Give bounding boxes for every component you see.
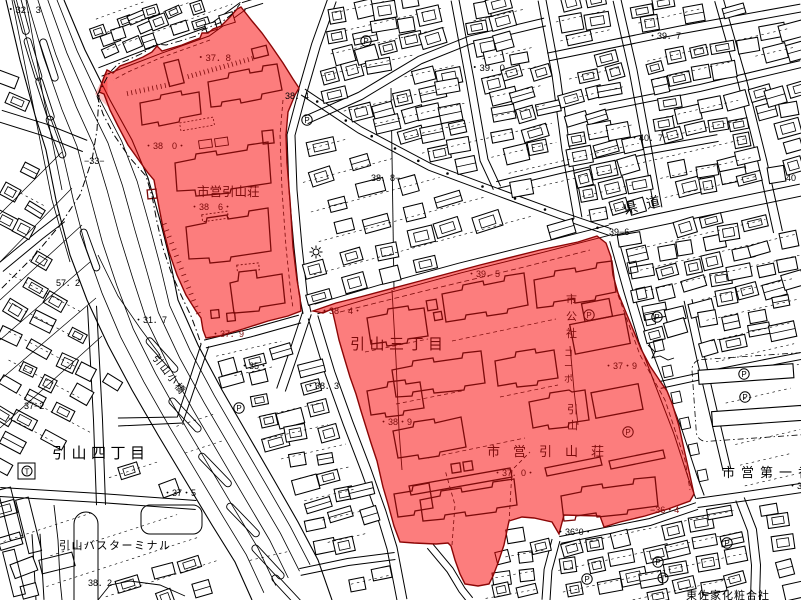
svg-text:・38 6・: ・38 6・ [190,202,232,212]
svg-text:公: 公 [566,311,577,323]
svg-text:38．8−: 38．8− [371,173,400,183]
svg-text:引山三丁目: 引山三丁目 [350,336,448,353]
svg-text:山: 山 [567,419,578,432]
svg-text:・37．8: ・37．8 [196,53,231,64]
svg-text:市営引山荘: 市営引山荘 [197,184,260,199]
svg-text:・37．9: ・37．9 [211,329,244,339]
svg-text:P: P [304,116,309,125]
svg-text:・35・: ・35・ [240,361,268,371]
svg-text:市: 市 [566,292,577,306]
svg-text:コ: コ [564,348,573,358]
svg-text:38．4: 38．4 [285,91,309,101]
svg-text:引: 引 [567,402,578,416]
svg-text:引山四丁目: 引山四丁目 [52,445,150,462]
svg-text:P: P [363,37,368,46]
svg-text:T: T [661,575,666,584]
svg-text:・38 0・: ・38 0・ [144,141,186,151]
svg-text:市営第一香流荘: 市営第一香流荘 [722,465,801,480]
svg-text:P: P [584,575,589,584]
svg-text:ー: ー [564,361,573,371]
svg-text:57．2: 57．2 [56,278,80,288]
svg-text:東佐家化粧合社: 東佐家化粧合社 [686,588,770,600]
svg-text:・39．0: ・39．0 [470,63,505,74]
svg-text:社: 社 [566,326,577,340]
svg-text:P: P [586,311,591,320]
svg-text:・38 4・: ・38 4・ [320,306,362,316]
svg-text:・37・5: ・37・5 [163,488,196,498]
svg-text:市 営 引 山 荘: 市 営 引 山 荘 [487,444,604,459]
svg-text:P: P [655,558,660,567]
svg-text:・36°0・: ・36°0・ [556,527,593,537]
svg-text:37−2: 37−2 [24,401,44,411]
svg-text:・40．7: ・40．7 [630,133,663,143]
svg-text:ポ: ポ [564,374,573,384]
svg-text:−36・4: −36・4 [650,505,679,515]
svg-text:・3: ・3 [788,481,801,491]
svg-text:T: T [25,468,30,477]
svg-text:P: P [741,370,746,379]
svg-text:39−6: 39−6 [609,227,629,237]
svg-text:−33−: −33− [84,156,105,166]
svg-text:P: P [742,393,747,402]
svg-text:・39．7: ・39．7 [648,31,681,41]
svg-text:・37．0・: ・37．0・ [493,468,535,478]
svg-text:・31．7: ・31．7 [134,315,167,325]
svg-text:P: P [625,428,630,437]
svg-text:・38．3: ・38．3 [306,381,339,391]
svg-text:P: P [654,313,659,322]
svg-text:38．2: 38．2 [88,578,112,588]
svg-text:・37・9: ・37・9 [604,361,637,371]
svg-text:40: 40 [786,173,796,183]
svg-text:・32．3: ・32．3 [6,5,41,16]
svg-text:引山バスターミナル: 引山バスターミナル [59,538,172,552]
svg-text:・39．5: ・39．5 [467,269,500,279]
svg-text:P: P [236,404,241,413]
svg-text:P: P [724,539,729,548]
svg-text:・38・9: ・38・9 [379,417,412,427]
